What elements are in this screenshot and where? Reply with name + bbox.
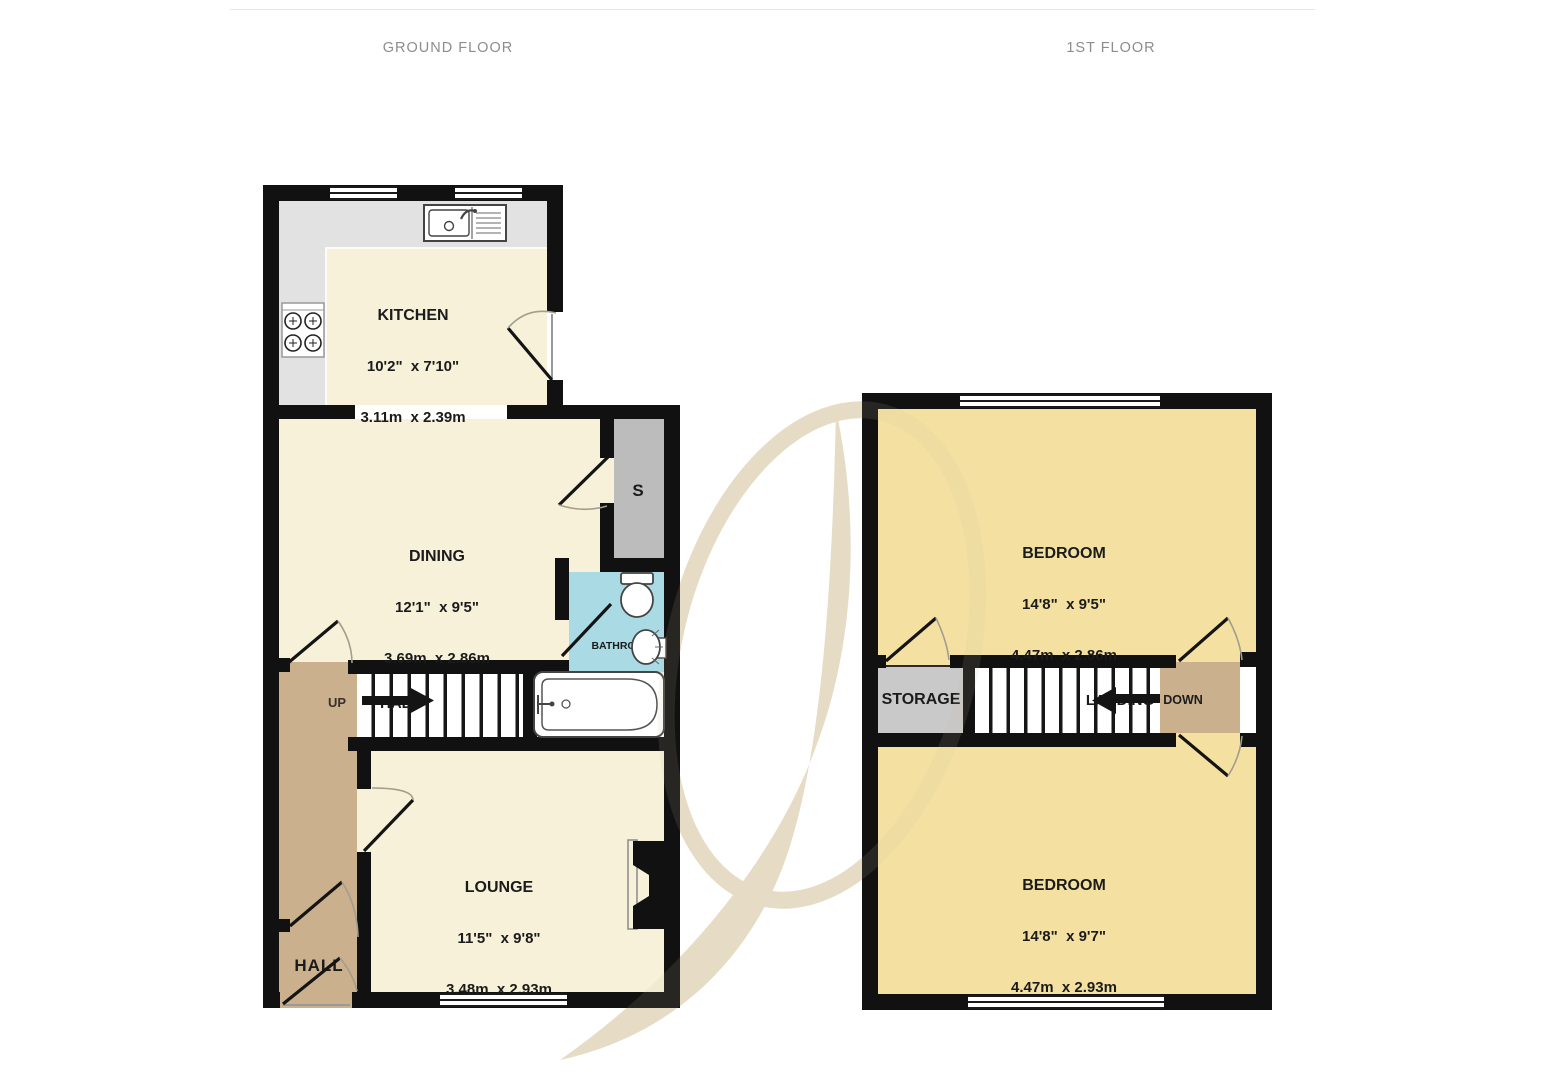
- wall-ff-band-top-right-stub: [1240, 652, 1256, 667]
- kitchen-counter-top: [279, 201, 547, 249]
- stairs-up-label: UP: [322, 695, 352, 710]
- wall-kitchen-right-upper: [547, 185, 563, 312]
- ground-floor-title: GROUND FLOOR: [348, 40, 548, 56]
- bathtub-niche: [537, 674, 664, 737]
- storage-label: STORAGE: [876, 691, 966, 709]
- wall-left-exterior: [263, 185, 279, 1008]
- wall-ff-band-bottom: [878, 733, 1176, 747]
- floorplan-page: GROUND FLOOR 1ST FLOOR: [0, 0, 1543, 1080]
- bedroom-back-name: BEDROOM: [964, 877, 1164, 894]
- kitchen-name: KITCHEN: [313, 307, 513, 324]
- wall-ff-band-bottom-right-stub: [1240, 733, 1256, 747]
- landing-recess: [1240, 667, 1256, 733]
- kitchen-window-left: [330, 186, 397, 200]
- bathroom-label: BATHROOM: [577, 640, 667, 652]
- wall-bottom-left-corner: [263, 992, 280, 1008]
- lounge-label: LOUNGE 11'5" x 9'8" 3.48m x 2.93m: [399, 845, 599, 1032]
- lounge-metric: 3.48m x 2.93m: [399, 981, 599, 998]
- bedroom-front-window: [960, 394, 1160, 408]
- kitchen-imperial: 10'2" x 7'10": [313, 358, 513, 375]
- store-label: S: [629, 481, 647, 501]
- wall-hall-stub: [279, 658, 290, 672]
- wall-kitchen-dining-right: [507, 405, 547, 419]
- wall-hall-door-stub: [279, 919, 290, 932]
- dining-imperial: 12'1" x 9'5": [337, 599, 537, 616]
- wall-kitchen-right-lower: [547, 380, 563, 405]
- wall-ff-band-left-stub: [878, 655, 886, 668]
- stairs-down-label: DOWN: [1162, 693, 1204, 707]
- hall-label: HALL: [269, 956, 369, 976]
- bedroom-front-label: BEDROOM 14'8" x 9'5" 4.47m x 2.86m: [964, 511, 1164, 698]
- bedroom-front-imperial: 14'8" x 9'5": [964, 596, 1164, 613]
- stairs-hall-label: HALL: [350, 695, 450, 712]
- dining-label: DINING 12'1" x 9'5" 3.69m x 2.86m: [337, 514, 537, 701]
- bathroom-floor: [569, 572, 664, 672]
- bedroom-back-label: BEDROOM 14'8" x 9'7" 4.47m x 2.93m: [964, 843, 1164, 1030]
- bedroom-back-metric: 4.47m x 2.93m: [964, 979, 1164, 996]
- wall-dining-store-upper: [600, 419, 614, 458]
- wall-bathroom-left: [555, 558, 569, 620]
- wall-ff-right-exterior: [1256, 393, 1272, 1010]
- wall-dining-store-lower: [600, 503, 614, 558]
- wall-step-top: [547, 405, 680, 419]
- dining-name: DINING: [337, 548, 537, 565]
- wall-hall-lounge-upper: [357, 751, 371, 789]
- landing-label: LANDING: [1078, 692, 1162, 709]
- wall-right-exterior: [664, 419, 680, 1008]
- ground-floor-symbols: [0, 0, 1543, 1080]
- lounge-imperial: 11'5" x 9'8": [399, 930, 599, 947]
- first-floor-title: 1ST FLOOR: [1011, 40, 1211, 56]
- watermark-logo: [0, 0, 1543, 1080]
- front-door-threshold: [283, 1004, 350, 1006]
- lounge-name: LOUNGE: [399, 879, 599, 896]
- dining-metric: 3.69m x 2.86m: [337, 650, 537, 667]
- first-floor-symbols: [0, 0, 1543, 1080]
- kitchen-metric: 3.11m x 2.39m: [313, 409, 513, 426]
- bedroom-front-name: BEDROOM: [964, 545, 1164, 562]
- watermark-overlay: [0, 0, 1543, 1080]
- wall-stairs-bottom: [348, 737, 680, 751]
- bedroom-front-metric: 4.47m x 2.86m: [964, 647, 1164, 664]
- kitchen-label: KITCHEN 10'2" x 7'10" 3.11m x 2.39m: [313, 273, 513, 460]
- kitchen-window-right: [455, 186, 522, 200]
- back-door-threshold: [551, 314, 553, 378]
- wall-store-bottom: [600, 558, 664, 572]
- top-divider: [230, 9, 1315, 10]
- bedroom-back-imperial: 14'8" x 9'7": [964, 928, 1164, 945]
